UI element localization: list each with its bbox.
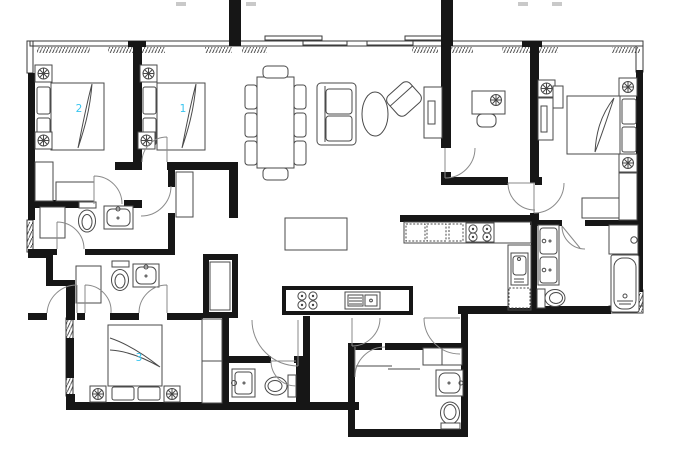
toilet-tank	[79, 202, 96, 208]
floor-plan-drawing: 2 1	[0, 0, 675, 450]
bed	[51, 83, 104, 150]
appliance	[427, 224, 446, 241]
tv	[428, 101, 435, 124]
living-dining-room	[245, 66, 442, 313]
window	[108, 47, 133, 53]
sliding-door	[405, 36, 447, 40]
balcony-mark	[176, 2, 186, 6]
door-swing	[139, 285, 167, 313]
dresser	[538, 98, 553, 140]
wardrobe	[56, 182, 94, 201]
sofa-cushion	[326, 116, 352, 141]
door-swing	[562, 226, 585, 249]
study-room	[472, 91, 505, 127]
bathroom-2	[76, 261, 159, 303]
pillow	[143, 87, 156, 114]
wardrobe	[176, 172, 193, 217]
shower	[609, 225, 638, 254]
bedroom-2-label: 2	[76, 103, 83, 115]
toilet-tank	[441, 423, 460, 429]
bedroom-1: 1	[138, 65, 205, 217]
door-swing	[355, 347, 385, 377]
toilet	[441, 402, 460, 424]
sliding-door	[265, 36, 322, 40]
appliance	[406, 224, 425, 241]
balcony-mark	[518, 2, 528, 6]
door-swing	[508, 183, 535, 210]
vanity	[538, 225, 559, 285]
window	[412, 47, 438, 53]
toilet	[79, 210, 96, 232]
window	[37, 47, 90, 53]
desk-chair	[477, 114, 496, 127]
balcony-divider-wall	[229, 0, 241, 46]
balcony-mark	[552, 2, 562, 6]
lamp-icon	[141, 135, 152, 146]
pillow	[622, 127, 636, 152]
chair	[245, 85, 257, 109]
floor-plan: 2 1	[0, 0, 675, 450]
appliance	[449, 224, 463, 241]
balcony-mark	[246, 2, 256, 6]
chair	[294, 141, 306, 165]
appliance	[509, 288, 530, 308]
chair	[294, 113, 306, 137]
lamp-icon	[167, 389, 178, 400]
desk	[472, 91, 505, 114]
lamp-icon	[491, 95, 502, 106]
bathroom-1	[40, 202, 133, 238]
chair	[294, 85, 306, 109]
wardrobe	[582, 198, 619, 218]
toilet-tank	[537, 289, 545, 308]
sliding-door	[367, 41, 413, 45]
window	[66, 376, 73, 394]
kitchen	[404, 222, 531, 310]
lamp-icon	[623, 82, 634, 93]
balcony-divider-wall	[441, 0, 453, 46]
closet-shaft	[210, 262, 230, 310]
bathroom-3	[232, 369, 297, 397]
utility-room	[356, 348, 463, 429]
bedroom-3: 3	[90, 319, 222, 403]
master-bathroom	[537, 225, 639, 312]
lamp-icon	[38, 135, 49, 146]
door-swing	[141, 186, 171, 216]
bedroom-1-label: 1	[180, 103, 187, 115]
door-swing	[94, 176, 122, 204]
chair	[245, 113, 257, 137]
lamp-icon	[623, 158, 634, 169]
door-swing	[534, 183, 564, 213]
desk-chair	[553, 86, 563, 108]
wardrobe	[35, 162, 53, 201]
lamp-icon	[541, 83, 552, 94]
master-bedroom	[538, 78, 637, 220]
pillow	[37, 87, 50, 114]
bed	[157, 83, 205, 150]
bedroom-3-label: 3	[136, 352, 143, 364]
sliding-door	[356, 366, 420, 369]
window	[242, 47, 267, 53]
pillow	[112, 387, 134, 400]
rug	[285, 218, 347, 250]
sofa-cushion	[326, 89, 352, 114]
toilet-tank	[112, 261, 129, 267]
window	[140, 47, 165, 53]
lamp-icon	[93, 389, 104, 400]
sliding-door	[303, 41, 347, 45]
pillow	[138, 387, 160, 400]
pillow	[622, 99, 636, 124]
chair	[263, 168, 288, 180]
wardrobe	[619, 173, 637, 220]
coffee-table	[362, 92, 388, 136]
window	[27, 222, 33, 248]
toilet	[112, 270, 129, 291]
shaft-inner	[210, 262, 230, 310]
window	[66, 320, 73, 338]
lamp-icon	[38, 68, 49, 79]
lamp-icon	[143, 68, 154, 79]
door-swing	[352, 318, 380, 346]
chair	[263, 66, 288, 78]
chair	[245, 141, 257, 165]
window	[205, 47, 232, 53]
shower	[76, 266, 101, 303]
window	[502, 47, 530, 53]
armchair	[384, 79, 424, 118]
dining-table	[257, 77, 294, 168]
